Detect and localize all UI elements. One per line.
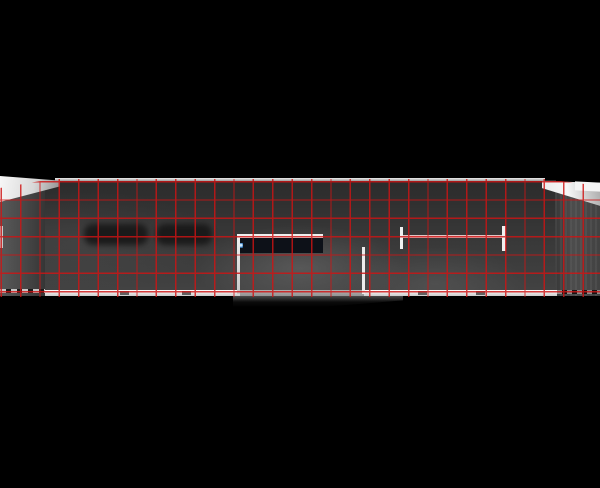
base-strip-entrance-shade — [240, 290, 364, 296]
entrance-post-right — [362, 247, 365, 294]
entrance-ground-shadow — [233, 296, 403, 307]
entrance-post-left — [237, 234, 240, 294]
dark-signage-bar-2 — [156, 224, 212, 245]
base-strip-mark — [182, 291, 191, 295]
base-strip-right-dashes — [557, 290, 600, 294]
edge-post-partial — [0, 226, 3, 248]
sign-beam-bar — [402, 235, 504, 238]
roof-corner-block — [575, 181, 600, 191]
roof-edge-trim — [55, 178, 545, 181]
led-strip — [239, 238, 323, 253]
base-strip-left-dashes — [0, 289, 45, 293]
render-canvas — [0, 0, 600, 488]
left-side-plane — [0, 186, 46, 296]
base-strip-mark — [120, 291, 129, 295]
base-strip-mark — [418, 291, 427, 295]
sign-beam-cap-left — [400, 227, 403, 249]
dark-signage-bar-1 — [84, 224, 148, 245]
base-strip-mark — [476, 291, 485, 295]
sign-beam-cap-right — [502, 226, 506, 251]
